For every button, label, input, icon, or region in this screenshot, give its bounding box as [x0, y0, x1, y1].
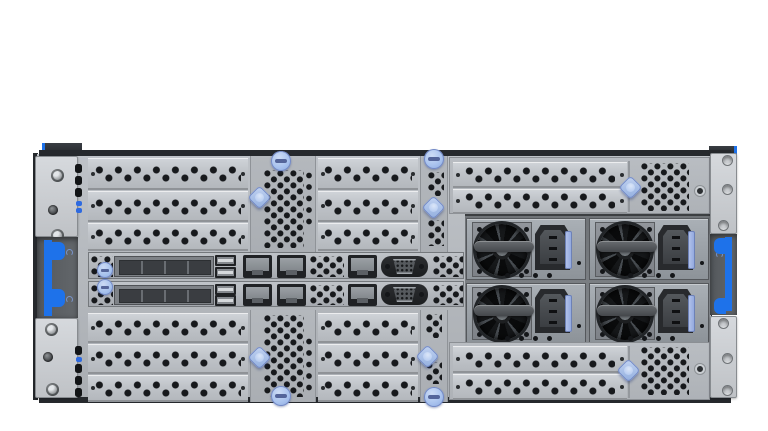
- vent-dot: [656, 273, 661, 278]
- vent-dot: [533, 336, 538, 341]
- screw-icon: [43, 352, 53, 362]
- vent-dot: [577, 261, 581, 265]
- vent-honeycomb: [310, 285, 344, 305]
- inlet-pins: [672, 299, 680, 302]
- thumbscrew-icon: [424, 387, 444, 407]
- finger-hole: [718, 220, 729, 231]
- pcie-slot-cover: [318, 191, 418, 222]
- pcie-slot-cover: [318, 344, 418, 374]
- vent-dot: [505, 273, 510, 278]
- vent-holes: [465, 167, 615, 183]
- vent-dot: [670, 273, 675, 278]
- riser-slot-cover: [453, 346, 627, 373]
- vent-dot: [628, 273, 633, 278]
- usb-port: [215, 284, 236, 295]
- vent-holes: [324, 229, 412, 245]
- vent-holes: [95, 166, 241, 182]
- expansion-bay: [114, 285, 214, 305]
- screw-dot: [647, 269, 652, 274]
- ethernet-port: [277, 255, 306, 278]
- screw-dot: [647, 332, 652, 337]
- vga-lug: [419, 264, 424, 269]
- status-led-blue: [76, 208, 82, 213]
- psu-4: [589, 283, 709, 343]
- psu-handle: [474, 305, 534, 316]
- screw-dot: [600, 269, 605, 274]
- right-ear-plate-bottom: [710, 316, 737, 398]
- ethernet-port: [243, 284, 272, 306]
- status-led: [75, 188, 82, 197]
- status-led: [75, 364, 82, 373]
- right-handle-tab: [714, 238, 726, 254]
- vent-holes: [95, 229, 241, 245]
- pcie-slot-cover: [88, 313, 248, 343]
- finger-hole: [722, 353, 733, 364]
- screw-dot: [524, 269, 529, 274]
- vent-honeycomb: [426, 314, 442, 338]
- vent-dot: [547, 336, 552, 341]
- pcie-slot-cover: [318, 158, 418, 190]
- vent-dot: [505, 336, 510, 341]
- io-row-1: [88, 252, 464, 279]
- round-latch-icon: [97, 262, 113, 278]
- vent-honeycomb: [433, 256, 463, 277]
- riser-slot-cover: [453, 374, 627, 400]
- vent-dot: [519, 336, 524, 341]
- bay-cells: [119, 260, 211, 275]
- status-led: [75, 376, 82, 385]
- vent-holes: [324, 381, 412, 397]
- vent-honeycomb: [428, 172, 444, 196]
- vga-lug: [419, 292, 424, 297]
- pcie-slot-cover: [318, 313, 418, 343]
- vent-holes: [95, 351, 241, 367]
- vent-holes: [95, 199, 241, 215]
- vent-dot-column: [306, 172, 312, 230]
- psu-handle: [597, 305, 657, 316]
- pcie-slot-cover: [318, 223, 418, 251]
- pcie-slot-cover: [88, 375, 248, 402]
- lower-riser: [449, 342, 710, 400]
- server-rear-view: [0, 0, 768, 431]
- left-ear-plate-bottom: [35, 318, 78, 398]
- vent-dot-column: [306, 338, 312, 394]
- vga-lug: [385, 264, 390, 269]
- screw-icon: [45, 323, 58, 336]
- vent-honeycomb: [310, 256, 344, 277]
- ethernet-port: [348, 284, 377, 306]
- thumbscrew-icon: [271, 151, 291, 171]
- left-handle-tab: [52, 242, 65, 260]
- vent-dot: [656, 336, 661, 341]
- vent-dot: [628, 336, 633, 341]
- psu-release-tab: [565, 295, 572, 332]
- finger-hole: [722, 184, 733, 195]
- screw-icon: [695, 364, 705, 374]
- vent-dot: [577, 324, 581, 328]
- riser-slot-cover: [453, 189, 627, 214]
- psu-2: [589, 218, 709, 280]
- usb-port: [215, 267, 236, 278]
- vent-dot: [547, 273, 552, 278]
- io-row-2: [88, 281, 464, 307]
- screw-dot: [647, 292, 652, 297]
- inlet-pins: [549, 236, 557, 239]
- ethernet-port: [348, 255, 377, 278]
- unlock-icon: [66, 249, 73, 256]
- expansion-bay: [114, 256, 214, 277]
- vent-holes: [324, 166, 412, 182]
- status-led: [75, 388, 82, 397]
- left-release-handle: [44, 240, 52, 316]
- unlock-icon: [66, 296, 73, 303]
- chassis: [33, 150, 737, 403]
- vent-holes: [95, 381, 241, 397]
- vga-lug: [385, 292, 390, 297]
- screw-dot: [524, 292, 529, 297]
- screw-dot: [477, 227, 482, 232]
- bay-cells: [119, 289, 211, 303]
- vent-holes: [465, 193, 615, 209]
- psu-release-tab: [565, 231, 572, 269]
- pcie-slot-cover: [88, 191, 248, 222]
- vent-dot: [519, 273, 524, 278]
- screw-dot: [600, 227, 605, 232]
- status-led: [75, 346, 82, 355]
- ethernet-port: [277, 284, 306, 306]
- psu-3: [466, 283, 586, 343]
- vent-dot: [642, 336, 647, 341]
- psu-release-tab: [688, 231, 695, 269]
- vga-pins: [391, 287, 418, 302]
- screw-dot: [477, 269, 482, 274]
- usb-port: [215, 295, 236, 306]
- ethernet-port: [243, 255, 272, 278]
- pcie-slot-cover: [88, 223, 248, 251]
- psu-handle: [474, 241, 534, 252]
- finger-hole: [722, 155, 733, 166]
- finger-hole: [718, 318, 729, 329]
- pcie-slot-cover: [318, 375, 418, 402]
- status-led-blue: [76, 357, 82, 362]
- screw-dot: [600, 332, 605, 337]
- left-ear-plate-top: [35, 156, 78, 237]
- thumbscrew-icon: [271, 386, 291, 406]
- screw-icon: [46, 383, 59, 396]
- vent-holes: [465, 352, 615, 368]
- vent-dot: [642, 273, 647, 278]
- right-ear-plate-top: [710, 153, 737, 234]
- vent-dot: [700, 324, 704, 328]
- right-release-handle: [725, 237, 732, 311]
- riser-slot-cover: [453, 162, 627, 188]
- screw-icon: [695, 186, 705, 196]
- screw-dot: [524, 227, 529, 232]
- chassis-edge-top: [39, 150, 731, 156]
- upper-riser: [449, 157, 710, 214]
- vent-holes: [95, 320, 241, 336]
- vent-holes: [324, 351, 412, 367]
- vent-dot: [533, 273, 538, 278]
- screw-icon: [48, 205, 58, 215]
- vent-honeycomb: [641, 347, 689, 395]
- psu-release-tab: [688, 295, 695, 332]
- vga-port: [381, 256, 428, 277]
- psu-1: [466, 218, 586, 280]
- usb-port: [215, 255, 236, 266]
- vga-pins: [391, 259, 418, 274]
- vent-dot: [670, 336, 675, 341]
- pcie-slot-cover: [88, 158, 248, 190]
- vent-honeycomb: [641, 163, 689, 211]
- vent-honeycomb: [428, 220, 444, 246]
- status-led-blue: [76, 201, 82, 206]
- finger-hole: [722, 385, 733, 396]
- inlet-pins: [672, 236, 680, 239]
- psu-cage: [465, 214, 710, 342]
- vent-holes: [465, 379, 615, 395]
- vent-holes: [324, 320, 412, 336]
- right-handle-tab: [714, 298, 726, 314]
- left-handle-tab: [52, 289, 65, 307]
- vent-honeycomb: [264, 170, 304, 248]
- round-latch-icon: [97, 279, 113, 295]
- vent-dot: [700, 261, 704, 265]
- vent-honeycomb: [433, 285, 463, 305]
- psu-handle: [597, 241, 657, 252]
- status-led: [75, 164, 82, 173]
- vga-port: [381, 284, 428, 305]
- thumbscrew-icon: [424, 149, 444, 169]
- screw-dot: [524, 332, 529, 337]
- status-led: [75, 176, 82, 185]
- screw-dot: [477, 332, 482, 337]
- screw-icon: [51, 169, 64, 182]
- screw-dot: [647, 227, 652, 232]
- inlet-pins: [549, 299, 557, 302]
- pcie-slot-cover: [88, 344, 248, 374]
- vent-holes: [324, 199, 412, 215]
